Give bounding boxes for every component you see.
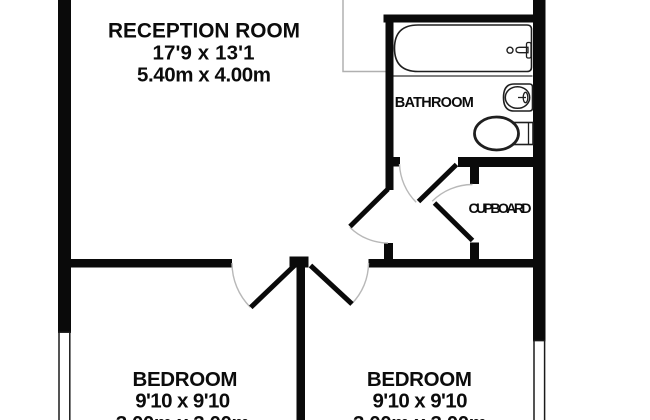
svg-text:3.00m x 3.00m: 3.00m x 3.00m [353,412,487,420]
svg-text:9'10 x 9'10: 9'10 x 9'10 [135,389,230,412]
svg-text:9'10 x 9'10: 9'10 x 9'10 [373,389,468,412]
svg-text:17'9 x 13'1: 17'9 x 13'1 [153,42,255,65]
svg-text:3.00m x 3.00m: 3.00m x 3.00m [116,412,250,420]
svg-text:BATHROOM: BATHROOM [395,95,474,111]
svg-text:CUPBOARD: CUPBOARD [469,200,532,216]
svg-text:BEDROOM: BEDROOM [367,368,472,391]
svg-text:BEDROOM: BEDROOM [133,368,238,391]
svg-text:5.40m x 4.00m: 5.40m x 4.00m [137,64,271,87]
svg-text:RECEPTION ROOM: RECEPTION ROOM [108,20,300,43]
